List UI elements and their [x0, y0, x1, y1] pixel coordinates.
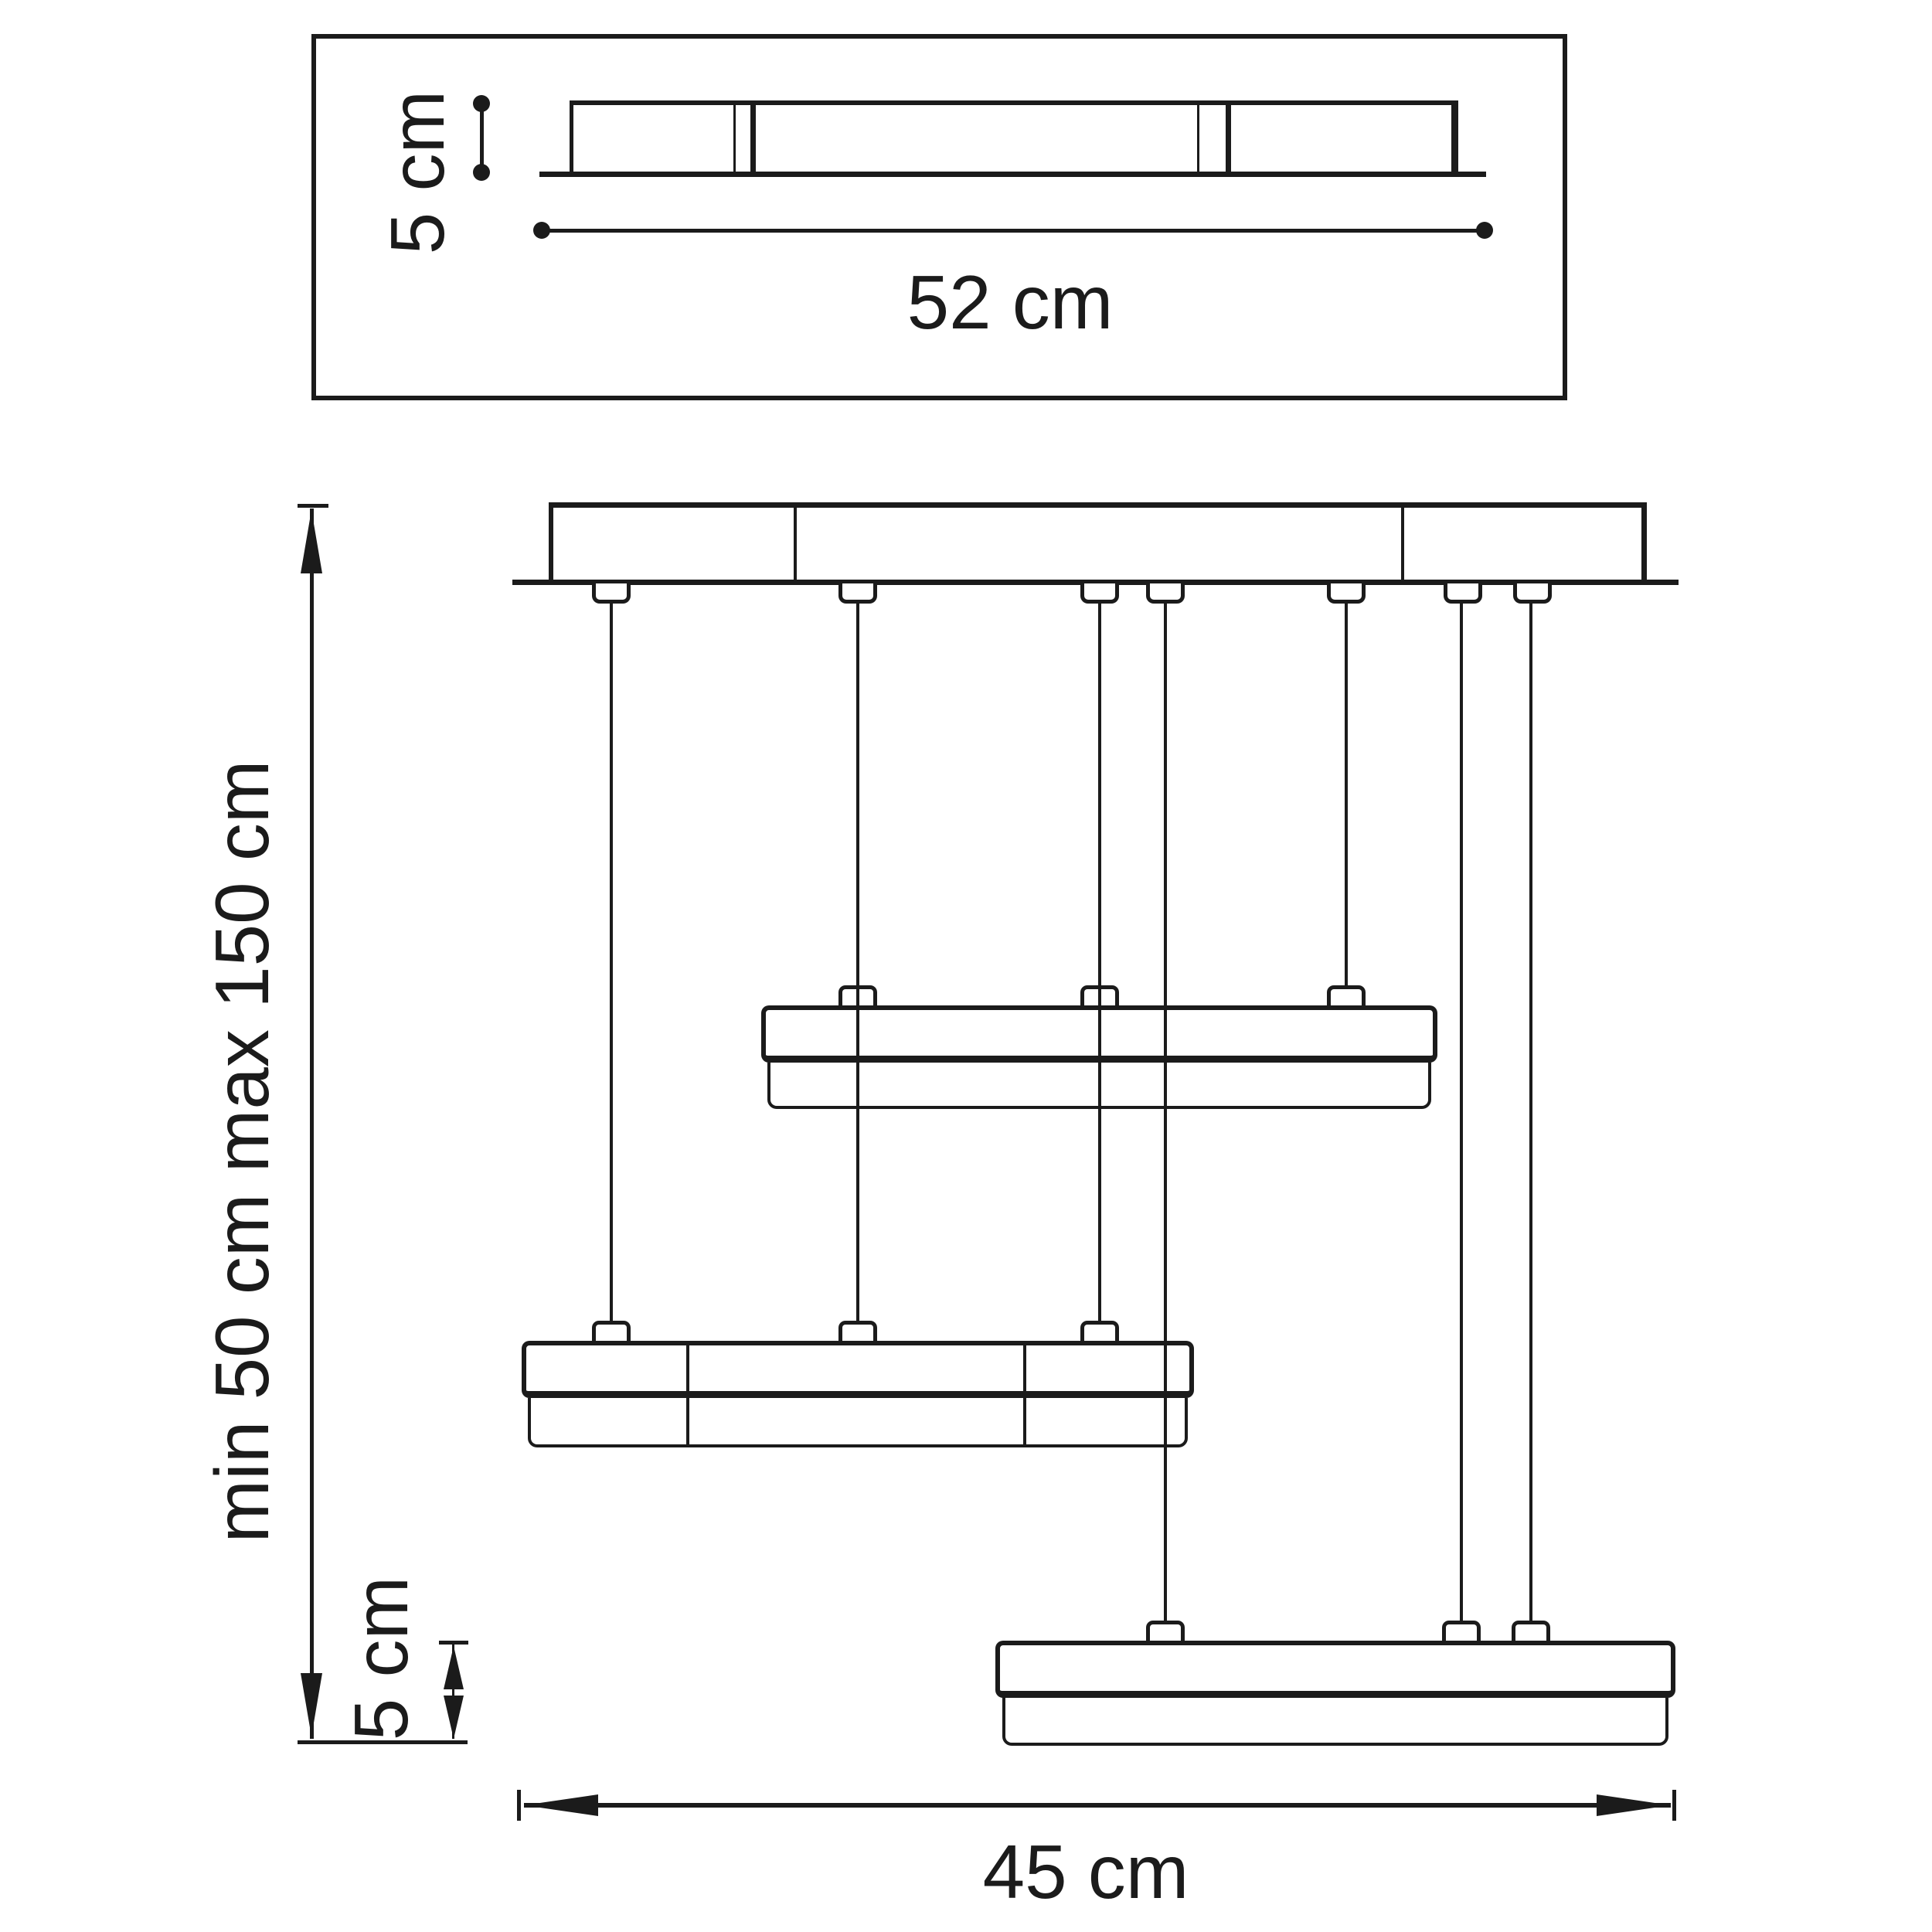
ceiling-plate-divider-right [1401, 508, 1404, 581]
dim-shaft [310, 509, 314, 1739]
canopy-divider-thin-left [733, 104, 736, 173]
cord-connector [1513, 583, 1552, 604]
dim-tick [1672, 1790, 1676, 1821]
suspension-cord [1345, 602, 1348, 988]
canopy-top-view [570, 100, 1458, 176]
suspension-cord [1098, 602, 1101, 1324]
arrowhead-up [444, 1646, 464, 1689]
dim-shaft [524, 1803, 1671, 1808]
suspension-cord [1460, 602, 1463, 1624]
dim-tick [517, 1790, 521, 1821]
ceiling-plate [549, 502, 1647, 581]
arrowhead-down [444, 1696, 464, 1739]
canopy-baseline [539, 172, 1486, 177]
tier-tab [1442, 1621, 1481, 1642]
tier-segment-divider [1023, 1345, 1026, 1444]
dim-endpoint-dot [1476, 222, 1493, 239]
dim-endpoint-dot [473, 164, 490, 181]
tier-tab [1512, 1621, 1550, 1642]
cord-connector [1444, 583, 1482, 604]
suspension-cord [856, 602, 859, 1324]
canopy-divider-thick-right [1226, 100, 1231, 176]
cord-connector [1146, 583, 1185, 604]
canopy-divider-thick-left [750, 100, 756, 176]
arrowhead-up [301, 510, 322, 573]
canopy-divider-thin-right [1197, 104, 1199, 173]
tier-body [995, 1641, 1675, 1698]
tier-segment-divider [686, 1345, 689, 1444]
fixture-height-label: 5 cm [342, 1543, 420, 1774]
dim-endpoint-dot [533, 222, 550, 239]
cord-connector [1080, 583, 1119, 604]
cord-connector [592, 583, 631, 604]
tier-tab [592, 1321, 631, 1342]
arrowhead-right [1597, 1794, 1671, 1816]
suspension-height-label: min 50 cm max 150 cm [203, 757, 281, 1546]
arrowhead-down [301, 1673, 322, 1736]
ceiling-plate-divider-left [794, 508, 797, 581]
suspension-cord [1529, 602, 1532, 1624]
tier-body [522, 1341, 1194, 1398]
top-view-panel [311, 34, 1567, 400]
technical-drawing-page: { "colors": { "ink": "#1b1b1b", "backgro… [0, 0, 1932, 1932]
canopy-width-label: 52 cm [855, 264, 1165, 341]
suspension-cord [610, 602, 613, 1324]
tier-tab [838, 1321, 877, 1342]
cord-connector [1327, 583, 1366, 604]
tier-tab [1327, 985, 1366, 1007]
suspension-cord [1164, 602, 1167, 1624]
fixture-width-label: 45 cm [931, 1833, 1240, 1910]
dim-endpoint-dot [473, 95, 490, 112]
tier-tab [1080, 1321, 1119, 1342]
tier-diffuser [528, 1398, 1188, 1447]
tier-diffuser [1002, 1698, 1668, 1746]
tier-tab [1146, 1621, 1185, 1642]
canopy-height-label: 5 cm [379, 56, 456, 288]
arrowhead-left [524, 1794, 598, 1816]
cord-connector [838, 583, 877, 604]
dim-tick [298, 504, 328, 508]
